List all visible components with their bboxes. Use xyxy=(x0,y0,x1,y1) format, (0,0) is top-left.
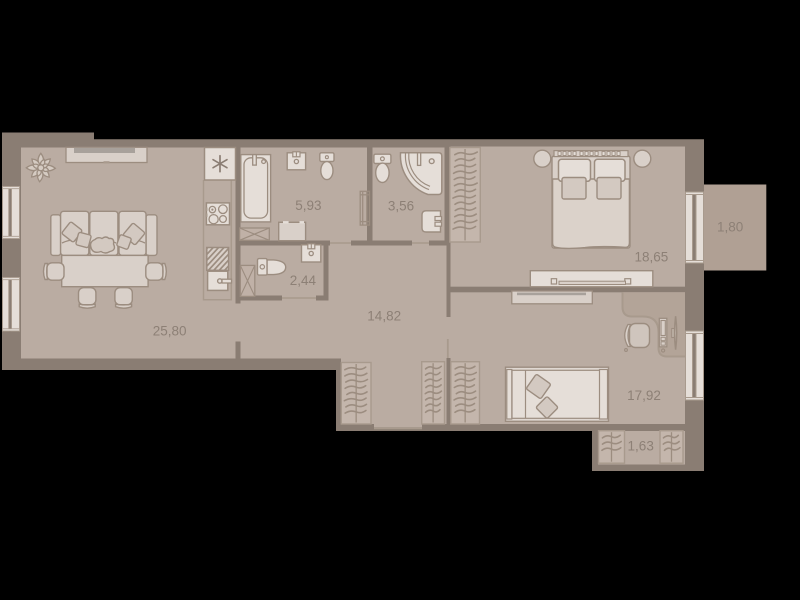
svg-text:25,80: 25,80 xyxy=(153,323,187,338)
svg-text:5,93: 5,93 xyxy=(295,198,321,213)
svg-text:18,65: 18,65 xyxy=(635,249,669,264)
svg-text:1,63: 1,63 xyxy=(628,439,654,454)
svg-text:2,44: 2,44 xyxy=(290,273,317,288)
svg-text:1,80: 1,80 xyxy=(717,219,743,234)
svg-text:14,82: 14,82 xyxy=(367,309,401,324)
svg-text:3,56: 3,56 xyxy=(388,199,414,214)
svg-text:17,92: 17,92 xyxy=(627,388,661,403)
